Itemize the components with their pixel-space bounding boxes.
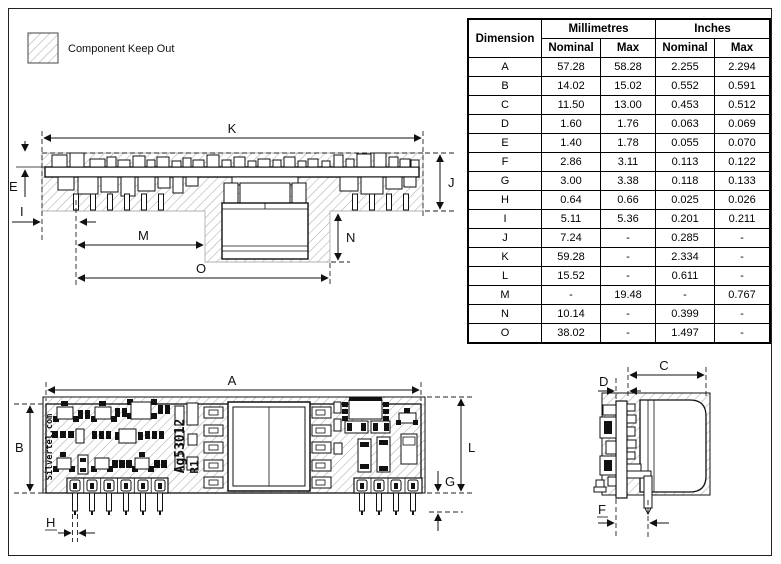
col-header-dimension: Dimension — [468, 19, 542, 58]
dimension-value: - — [601, 229, 656, 248]
dim-label-l: L — [468, 440, 475, 455]
dimension-value: 0.552 — [656, 77, 715, 96]
dimension-value: 11.50 — [542, 96, 601, 115]
dimension-value: - — [715, 305, 771, 324]
dimension-value: 1.78 — [601, 134, 656, 153]
table-row: O38.02-1.497- — [468, 324, 770, 344]
dimension-value: 15.02 — [601, 77, 656, 96]
dimension-value: 13.00 — [601, 96, 656, 115]
dimension-letter: A — [468, 58, 542, 77]
dimension-letter: J — [468, 229, 542, 248]
col-group-millimetres: Millimetres — [542, 19, 656, 39]
side-view: K E J I M N O — [9, 121, 456, 288]
table-row: B14.0215.020.5520.591 — [468, 77, 770, 96]
pcb-end — [616, 401, 627, 498]
dim-label-e: E — [9, 179, 18, 194]
dimension-value: 0.453 — [656, 96, 715, 115]
dimension-letter: F — [468, 153, 542, 172]
dimension-value: 1.40 — [542, 134, 601, 153]
dimension-value: - — [601, 267, 656, 286]
table-row: M-19.48-0.767 — [468, 286, 770, 305]
dimension-letter: C — [468, 96, 542, 115]
dimension-value: 0.122 — [715, 153, 771, 172]
dimension-value: 0.025 — [656, 191, 715, 210]
top-view: Silvertel.com Ag53012 R1 A B L G — [14, 373, 475, 542]
dimension-value: 1.497 — [656, 324, 715, 344]
table-row: L15.52-0.611- — [468, 267, 770, 286]
col-header-mm-max: Max — [601, 39, 656, 58]
dimension-value: 0.591 — [715, 77, 771, 96]
dimension-value: 15.52 — [542, 267, 601, 286]
mechanical-drawing-page: Component Keep Out — [0, 0, 781, 564]
dimension-value: 0.201 — [656, 210, 715, 229]
dimension-value: 0.055 — [656, 134, 715, 153]
dimension-value: - — [542, 286, 601, 305]
dim-label-j: J — [448, 175, 455, 190]
dim-label-b: B — [15, 440, 24, 455]
dimension-value: - — [601, 305, 656, 324]
legend-label: Component Keep Out — [68, 43, 174, 55]
table-row: H0.640.660.0250.026 — [468, 191, 770, 210]
dimension-value: 57.28 — [542, 58, 601, 77]
dim-label-o: O — [196, 261, 206, 276]
dimension-value: 0.069 — [715, 115, 771, 134]
dimensions-table: Dimension Millimetres Inches Nominal Max… — [467, 18, 771, 344]
dimension-value: 0.026 — [715, 191, 771, 210]
dim-label-n: N — [346, 230, 355, 245]
dimension-letter: E — [468, 134, 542, 153]
dimension-value: 38.02 — [542, 324, 601, 344]
table-row: N10.14-0.399- — [468, 305, 770, 324]
dimension-value: 0.118 — [656, 172, 715, 191]
dimension-value: - — [656, 286, 715, 305]
dimension-value: 3.38 — [601, 172, 656, 191]
dimension-letter: O — [468, 324, 542, 344]
dimension-value: 0.285 — [656, 229, 715, 248]
dimension-value: 3.11 — [601, 153, 656, 172]
table-row: J7.24-0.285- — [468, 229, 770, 248]
silkscreen-part-number: Ag53012 — [173, 419, 188, 474]
dim-label-c: C — [659, 358, 668, 373]
dimension-letter: I — [468, 210, 542, 229]
dimension-letter: N — [468, 305, 542, 324]
col-header-in-nominal: Nominal — [656, 39, 715, 58]
dimension-value: 10.14 — [542, 305, 601, 324]
dimension-value: 58.28 — [601, 58, 656, 77]
dimension-value: 14.02 — [542, 77, 601, 96]
dimension-value: 59.28 — [542, 248, 601, 267]
dimension-value: 2.334 — [656, 248, 715, 267]
col-header-in-max: Max — [715, 39, 771, 58]
dimension-value: 3.00 — [542, 172, 601, 191]
table-row: F2.863.110.1130.122 — [468, 153, 770, 172]
dim-label-f: F — [598, 502, 606, 517]
dimension-value: 0.211 — [715, 210, 771, 229]
transformer-top — [228, 402, 310, 491]
dimension-value: 0.399 — [656, 305, 715, 324]
dimension-value: 7.24 — [542, 229, 601, 248]
dimension-value: 0.133 — [715, 172, 771, 191]
dimension-value: - — [601, 248, 656, 267]
table-row: D1.601.760.0630.069 — [468, 115, 770, 134]
dimension-letter: B — [468, 77, 542, 96]
dim-label-d: D — [599, 374, 608, 389]
dimension-value: 5.36 — [601, 210, 656, 229]
col-header-mm-nominal: Nominal — [542, 39, 601, 58]
dimension-value: 0.512 — [715, 96, 771, 115]
end-view: C D F — [594, 358, 710, 537]
dimension-value: 0.767 — [715, 286, 771, 305]
table-row: G3.003.380.1180.133 — [468, 172, 770, 191]
table-row: I5.115.360.2010.211 — [468, 210, 770, 229]
dimension-value: 0.063 — [656, 115, 715, 134]
table-row: K59.28-2.334- — [468, 248, 770, 267]
legend: Component Keep Out — [28, 33, 174, 63]
dimension-value: 1.60 — [542, 115, 601, 134]
dimension-letter: M — [468, 286, 542, 305]
dimension-value: 0.611 — [656, 267, 715, 286]
dimension-value: 5.11 — [542, 210, 601, 229]
dim-label-m: M — [138, 228, 149, 243]
dimension-letter: G — [468, 172, 542, 191]
silkscreen-brand: Silvertel.com — [44, 414, 55, 481]
dimension-value: - — [601, 324, 656, 344]
dimension-value: 2.86 — [542, 153, 601, 172]
dimension-letter: H — [468, 191, 542, 210]
table-row: A57.2858.282.2552.294 — [468, 58, 770, 77]
pcb-side — [45, 167, 419, 177]
dimension-value: 0.113 — [656, 153, 715, 172]
transformer-side — [222, 177, 308, 259]
dimension-value: - — [715, 248, 771, 267]
col-group-inches: Inches — [656, 19, 771, 39]
dimension-value: 2.294 — [715, 58, 771, 77]
dimension-value: 0.66 — [601, 191, 656, 210]
dimension-value: 1.76 — [601, 115, 656, 134]
silkscreen-revision: R1 — [188, 460, 201, 474]
dimension-value: 19.48 — [601, 286, 656, 305]
dimension-value: - — [715, 267, 771, 286]
keep-out-swatch — [28, 33, 58, 63]
dim-label-i: I — [20, 204, 24, 219]
dim-label-h: H — [46, 515, 55, 530]
dimension-value: 2.255 — [656, 58, 715, 77]
dimension-value: - — [715, 324, 771, 344]
dim-label-k: K — [228, 121, 237, 136]
dim-label-a: A — [228, 373, 237, 388]
table-row: C11.5013.000.4530.512 — [468, 96, 770, 115]
dimension-letter: K — [468, 248, 542, 267]
dim-label-g: G — [445, 474, 455, 489]
dimension-value: - — [715, 229, 771, 248]
dimension-value: 0.64 — [542, 191, 601, 210]
dimension-value: 0.070 — [715, 134, 771, 153]
dimension-letter: L — [468, 267, 542, 286]
dimension-letter: D — [468, 115, 542, 134]
table-row: E1.401.780.0550.070 — [468, 134, 770, 153]
